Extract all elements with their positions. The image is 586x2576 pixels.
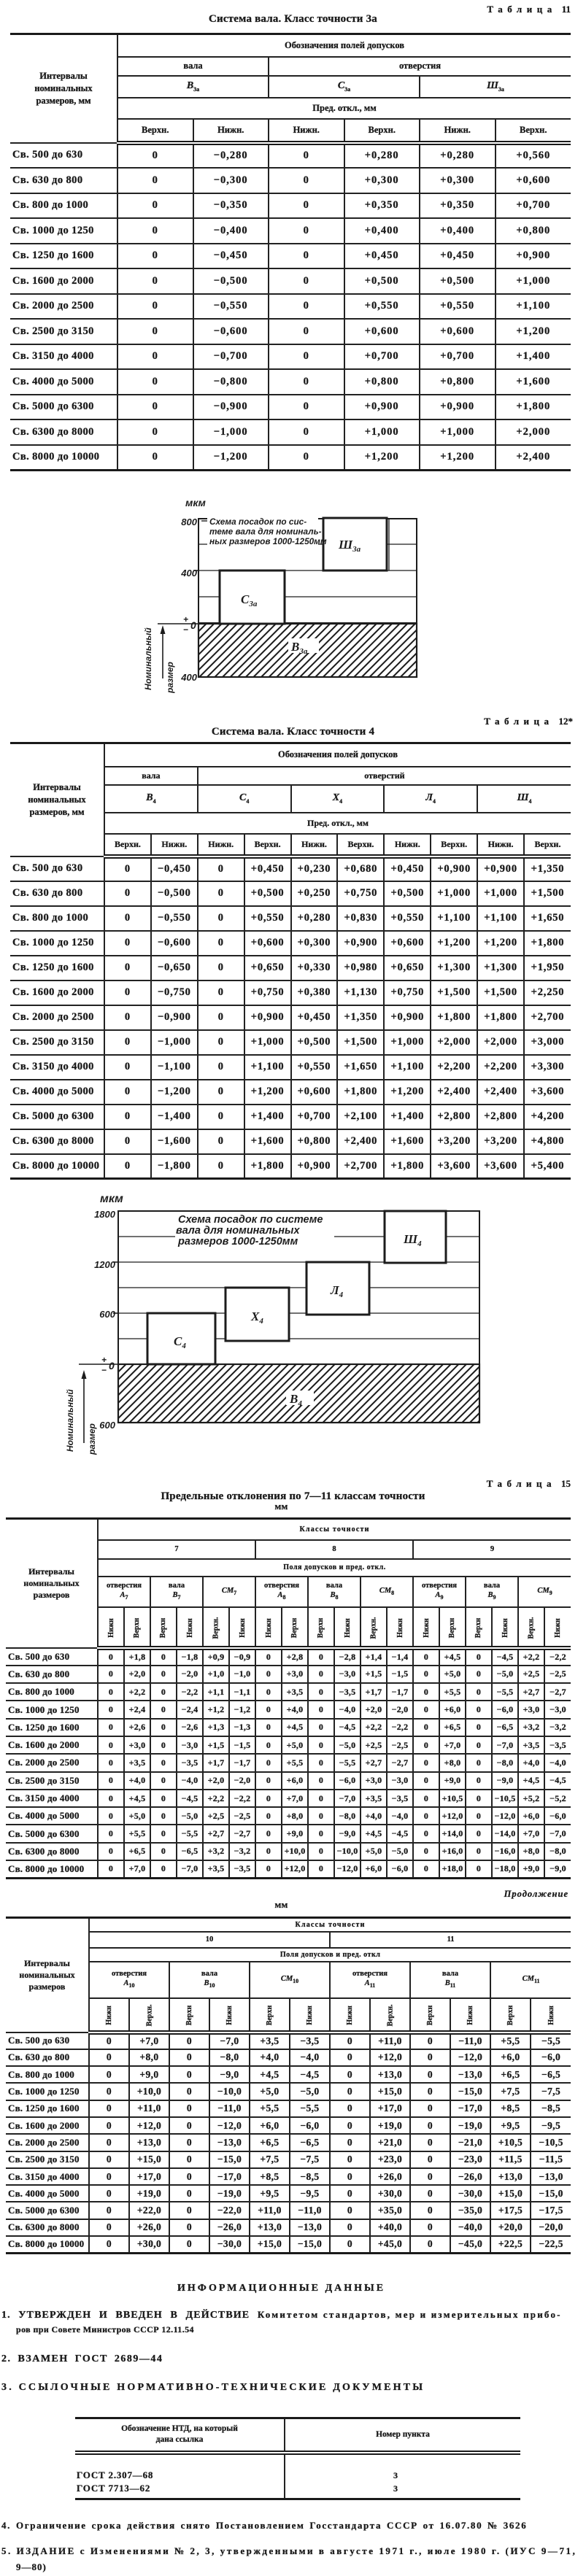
svg-text:+: + bbox=[101, 1355, 107, 1365]
svg-text:+: + bbox=[183, 614, 188, 624]
svg-text:400: 400 bbox=[180, 568, 197, 579]
svg-text:размер: размер bbox=[87, 1423, 97, 1455]
svg-text:мкм: мкм bbox=[100, 1193, 123, 1205]
svg-text:размер: размер bbox=[165, 662, 175, 693]
svg-text:мкм: мкм bbox=[185, 497, 206, 508]
svg-text:1800: 1800 bbox=[94, 1209, 116, 1220]
svg-text:теме вала для номиналь-: теме вала для номиналь- bbox=[209, 527, 322, 537]
svg-text:600: 600 bbox=[99, 1309, 115, 1320]
svg-text:Номинальный: Номинальный bbox=[143, 627, 153, 690]
svg-text:−: − bbox=[183, 624, 188, 635]
svg-text:600: 600 bbox=[99, 1420, 115, 1431]
svg-text:0: 0 bbox=[190, 619, 196, 631]
svg-text:Номинальный: Номинальный bbox=[65, 1389, 75, 1452]
svg-text:−: − bbox=[101, 1365, 107, 1375]
svg-text:1200: 1200 bbox=[94, 1259, 116, 1270]
svg-text:400: 400 bbox=[180, 672, 197, 683]
svg-text:ных размеров 1000-1250мм: ных размеров 1000-1250мм bbox=[209, 536, 327, 546]
svg-text:Схема посадок по системе: Схема посадок по системе bbox=[178, 1214, 323, 1226]
svg-text:Схема посадок по сис-: Схема посадок по сис- bbox=[209, 517, 307, 527]
svg-text:800: 800 bbox=[181, 517, 197, 527]
svg-text:0: 0 bbox=[109, 1360, 115, 1372]
svg-text:размеров 1000-1250мм: размеров 1000-1250мм bbox=[177, 1236, 298, 1248]
svg-text:вала для номинальных: вала для номинальных bbox=[176, 1225, 300, 1237]
